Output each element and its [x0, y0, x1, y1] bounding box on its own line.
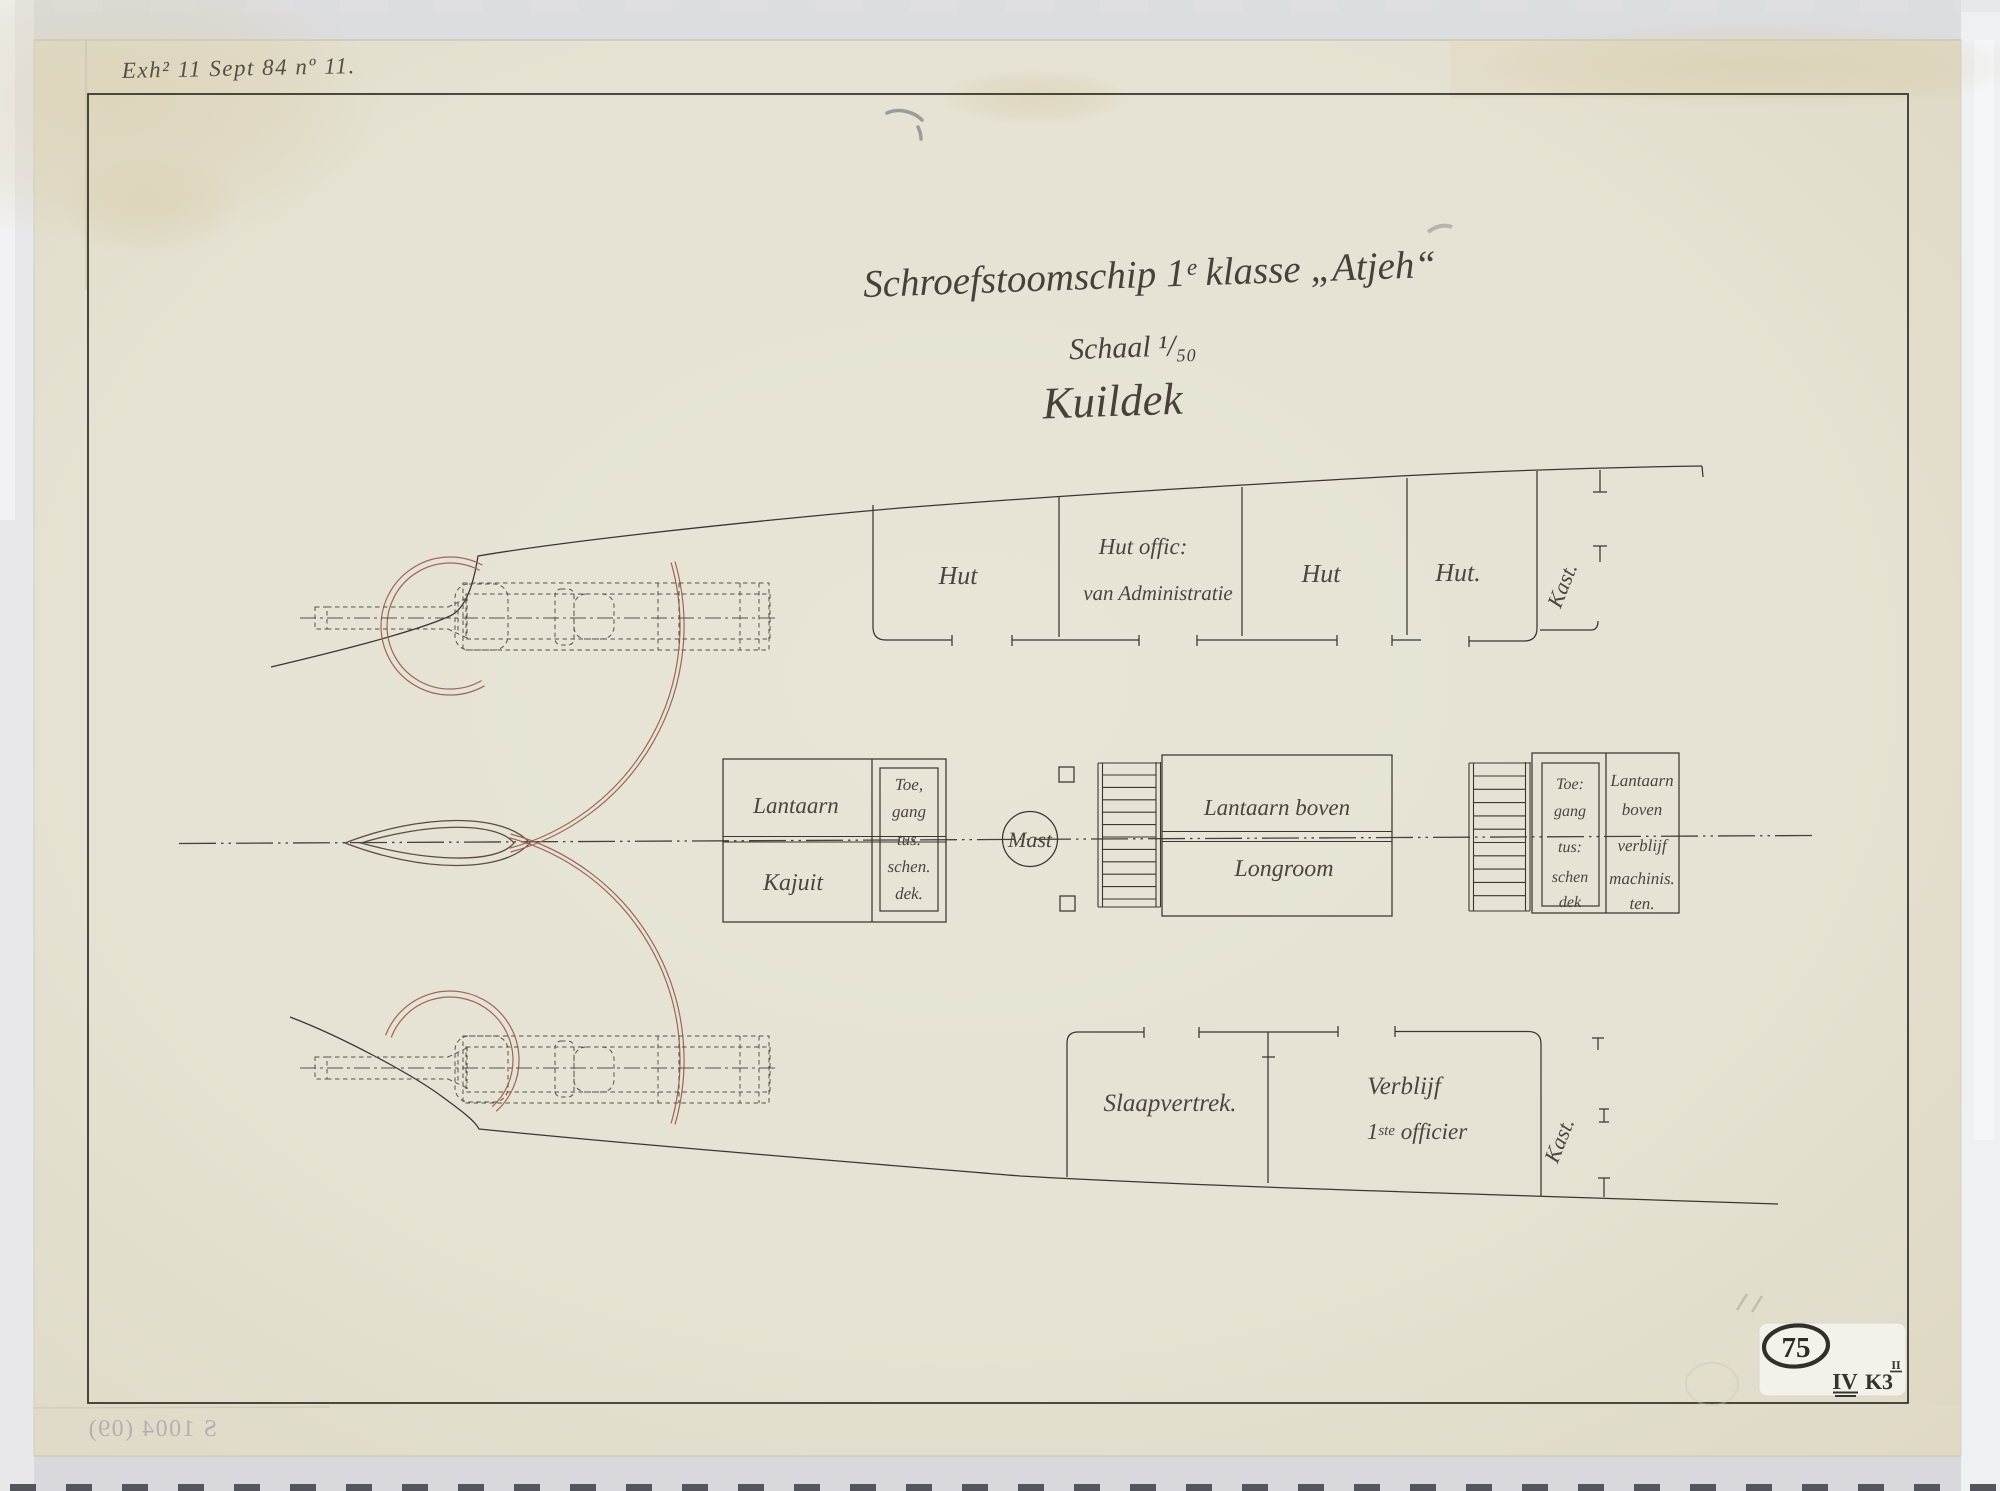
svg-text:Kajuit: Kajuit — [762, 870, 824, 896]
svg-text:Hut: Hut — [1301, 559, 1342, 588]
svg-text:gang: gang — [892, 802, 926, 821]
svg-text:Schaal ¹/₅₀: Schaal ¹/₅₀ — [1068, 329, 1196, 366]
svg-text:Kuildek: Kuildek — [1041, 374, 1185, 429]
svg-text:75: 75 — [1782, 1332, 1811, 1364]
svg-text:Hut.: Hut. — [1434, 558, 1481, 587]
svg-text:ten.: ten. — [1629, 894, 1654, 913]
svg-text:tus:: tus: — [1558, 839, 1582, 856]
svg-text:K3: K3 — [1865, 1369, 1893, 1394]
svg-text:gang: gang — [1554, 803, 1586, 820]
svg-text:Toe:: Toe: — [1556, 776, 1584, 793]
svg-text:Lantaarn boven: Lantaarn boven — [1203, 795, 1350, 820]
svg-text:Toe,: Toe, — [895, 775, 923, 794]
svg-text:Lantaarn: Lantaarn — [1609, 771, 1673, 790]
svg-text:II: II — [1891, 1358, 1901, 1372]
svg-text:Exh² 11 Sept 84 nº 11.: Exh² 11 Sept 84 nº 11. — [121, 53, 356, 83]
svg-text:Hut: Hut — [938, 561, 979, 590]
svg-text:boven: boven — [1622, 800, 1663, 819]
svg-text:van Administratie: van Administratie — [1083, 581, 1233, 605]
svg-text:machinis.: machinis. — [1609, 869, 1675, 888]
svg-text:Mast: Mast — [1007, 827, 1053, 852]
svg-text:Verblijf: Verblijf — [1367, 1073, 1444, 1100]
svg-text:IV: IV — [1832, 1369, 1858, 1394]
svg-text:schen: schen — [1552, 869, 1588, 886]
svg-text:dek: dek — [1559, 894, 1582, 911]
svg-text:Lantaarn: Lantaarn — [752, 793, 839, 818]
svg-text:S 1004 (09): S 1004 (09) — [87, 1416, 217, 1442]
svg-text:Longroom: Longroom — [1233, 856, 1333, 882]
svg-text:Hut offic:: Hut offic: — [1098, 534, 1188, 559]
svg-text:verblijf: verblijf — [1617, 836, 1668, 855]
svg-text:schen.: schen. — [888, 857, 931, 876]
svg-text:Slaapvertrek.: Slaapvertrek. — [1103, 1090, 1236, 1117]
svg-text:tus.: tus. — [897, 830, 921, 849]
svg-text:dek.: dek. — [895, 884, 923, 903]
